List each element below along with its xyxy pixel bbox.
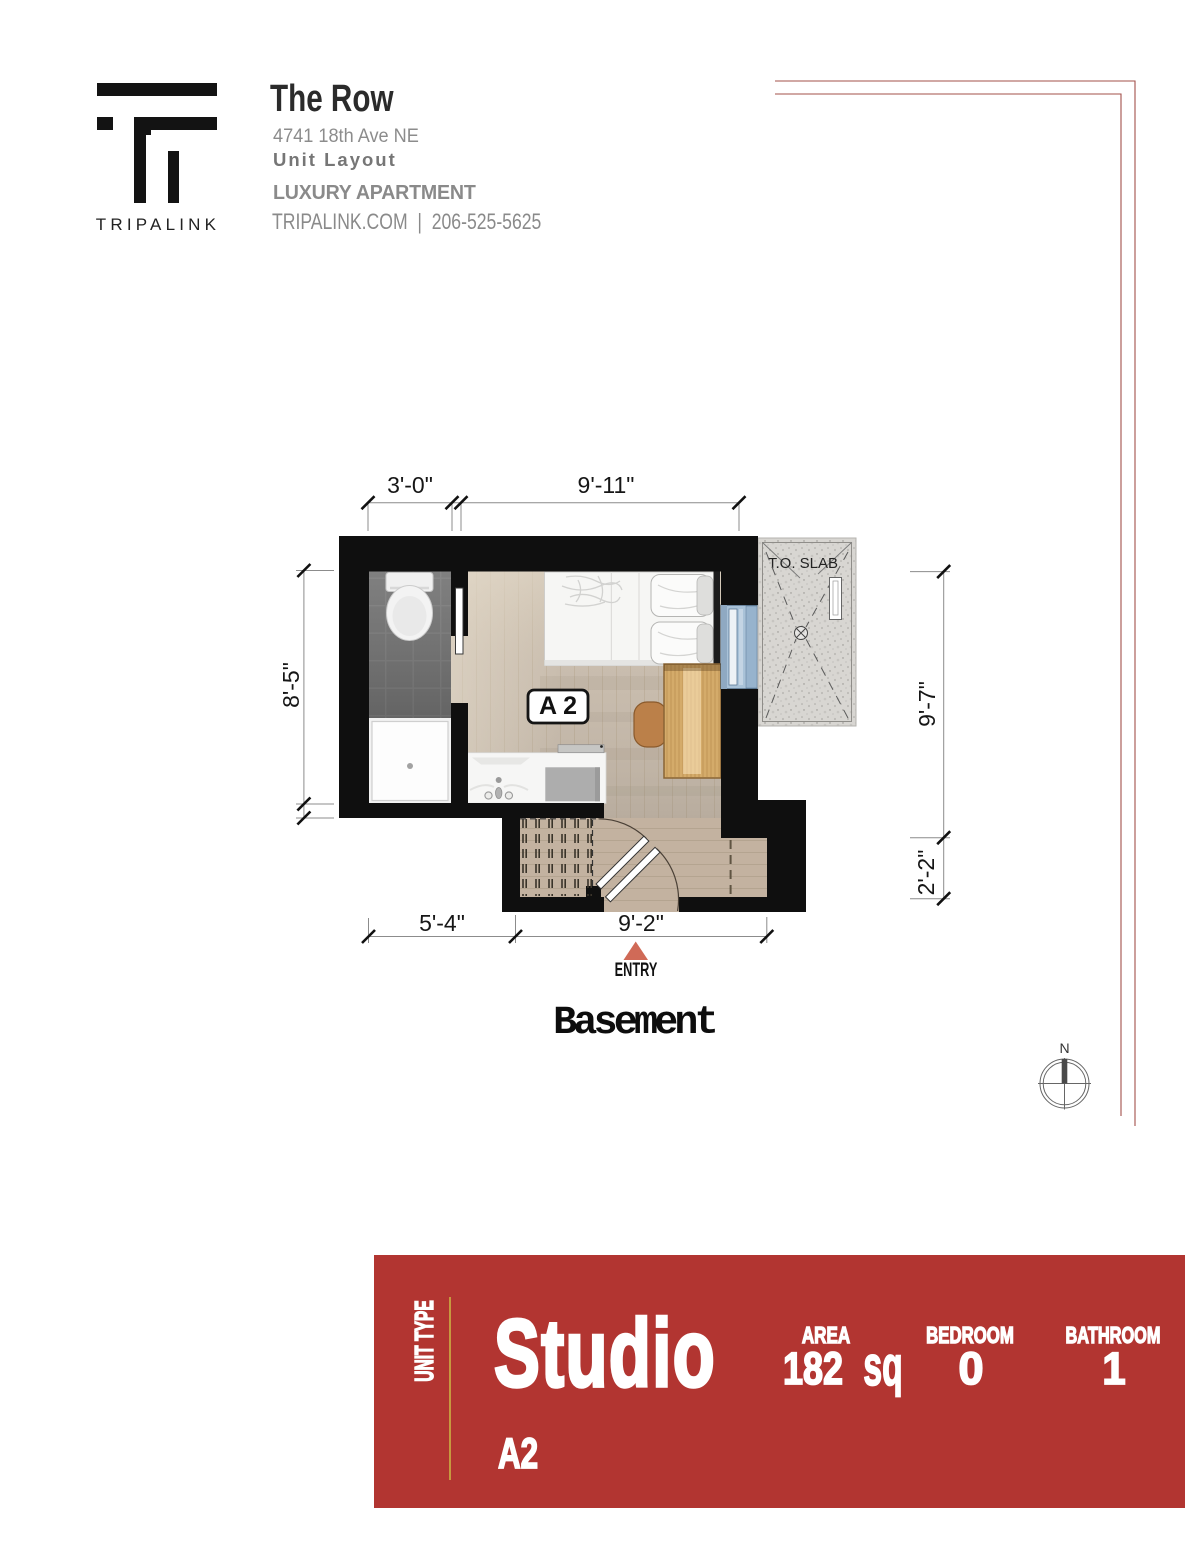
svg-text:5'-4": 5'-4" [419,910,465,936]
svg-text:3'-0": 3'-0" [387,472,433,498]
svg-text:T.O. SLAB: T.O. SLAB [768,555,838,572]
svg-text:8'-5": 8'-5" [278,662,304,708]
svg-text:2'-2": 2'-2" [913,850,939,896]
svg-text:Basement: Basement [553,1001,715,1046]
svg-text:N: N [1059,1040,1069,1056]
svg-text:ENTRY: ENTRY [615,960,658,981]
svg-text:9'-7": 9'-7" [914,681,940,727]
svg-text:9'-2": 9'-2" [618,910,664,936]
svg-text:A 2: A 2 [539,692,577,720]
svg-text:9'-11": 9'-11" [578,472,635,498]
